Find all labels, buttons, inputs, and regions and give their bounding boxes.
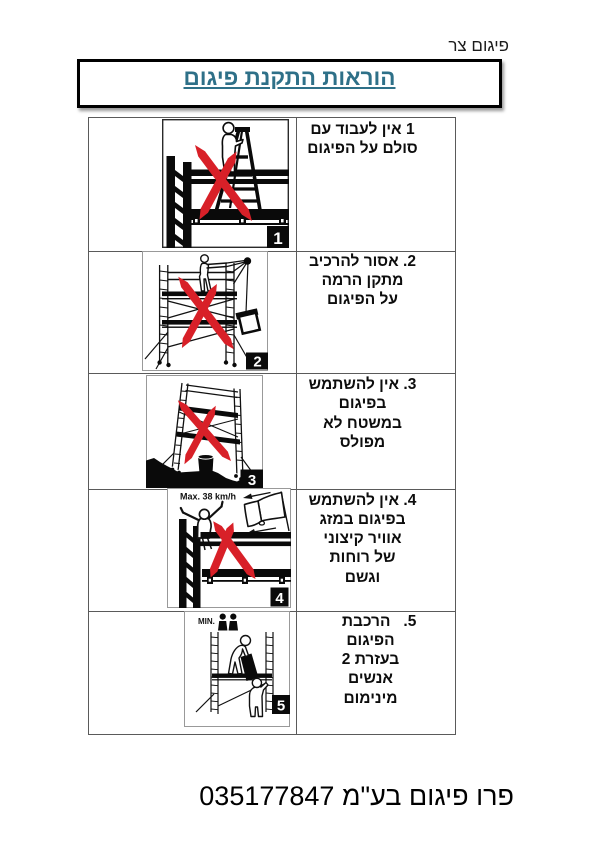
svg-text:5: 5: [277, 698, 285, 715]
svg-text:MIN.: MIN.: [198, 617, 215, 626]
svg-text:1: 1: [273, 229, 282, 248]
svg-text:3: 3: [248, 472, 256, 488]
svg-text:2: 2: [253, 354, 261, 371]
svg-text:Max. 38 km/h: Max. 38 km/h: [180, 492, 236, 502]
svg-text:4: 4: [275, 590, 284, 607]
